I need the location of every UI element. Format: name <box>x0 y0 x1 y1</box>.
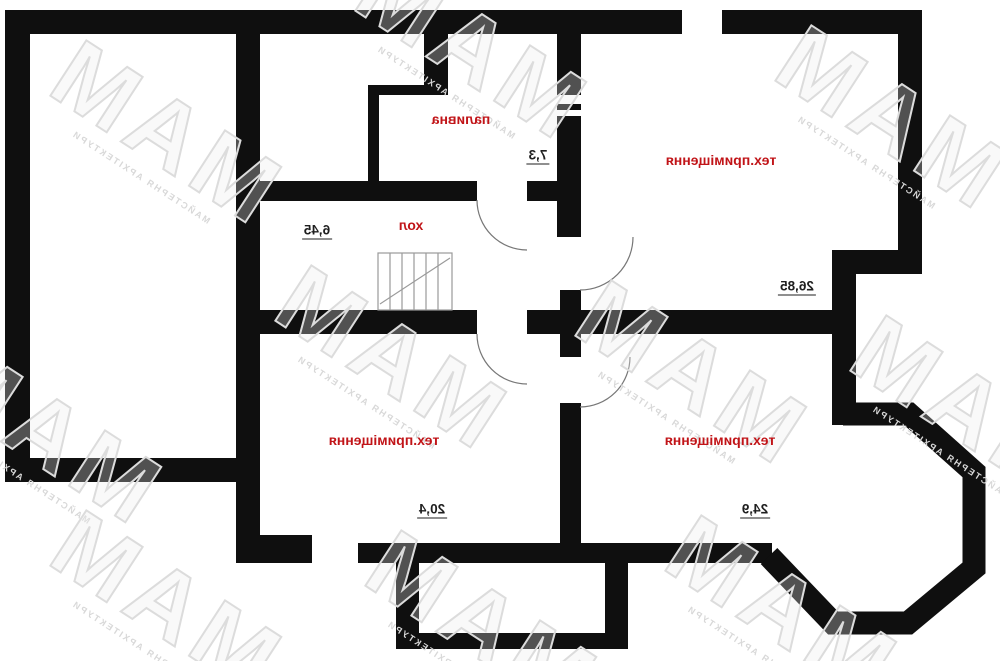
room-label-tech-room-3: тех.приміщення <box>665 432 776 448</box>
floor-plan: МАМ МАЙСТЕРНЯ АРХІТЕКТУРИ МАМ МАЙСТЕРНЯ … <box>0 0 1000 661</box>
labels-layer: паливна 7,3 хол 6,45 тех.приміщення 26,8… <box>0 0 1000 661</box>
room-label-tech-room-2: тех.приміщення <box>329 432 440 448</box>
room-area-hall: 6,45 <box>302 223 332 240</box>
room-area-tech-room-2: 20,4 <box>417 502 447 519</box>
room-area-tech-room-1: 26,85 <box>778 279 816 296</box>
room-label-tech-room-1: тех.приміщення <box>666 152 777 168</box>
room-label-hall: хол <box>399 217 424 233</box>
room-label-fuel-room: паливна <box>432 111 491 127</box>
room-area-tech-room-3: 24,9 <box>740 502 770 519</box>
room-area-fuel-room: 7,3 <box>527 148 550 165</box>
